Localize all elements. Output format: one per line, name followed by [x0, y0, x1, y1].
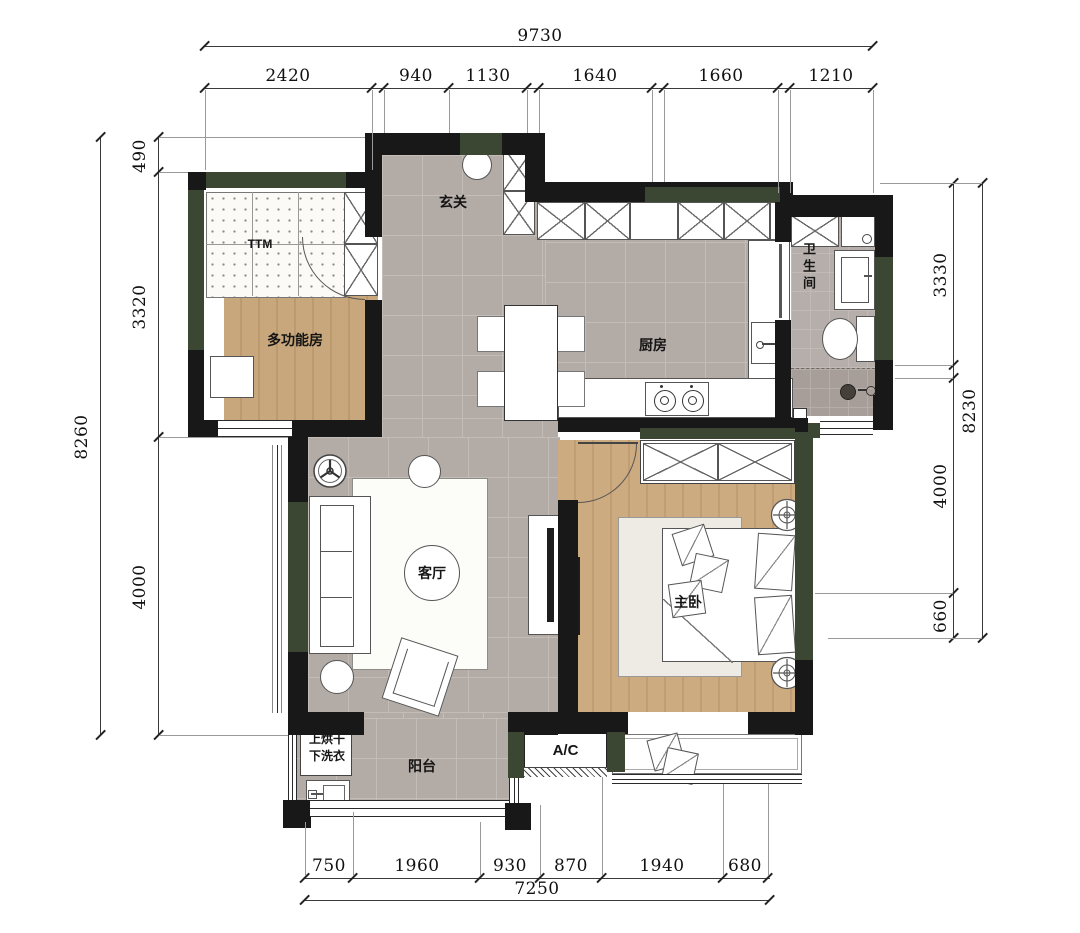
extension-line: [873, 90, 874, 193]
dimension-label: 490: [130, 121, 150, 191]
floor-plan: 客厅: [0, 0, 1080, 933]
wardrobe: [643, 443, 718, 481]
basin-icon: [841, 257, 869, 303]
extension-line: [353, 812, 354, 876]
dimension-line: [100, 137, 101, 735]
dining-table: [504, 305, 558, 421]
coffee-table: 客厅: [404, 545, 460, 601]
vanity: [834, 250, 875, 310]
wardrobe: [718, 443, 792, 481]
outer-wall: [795, 438, 813, 660]
side-stool: [408, 455, 441, 488]
kitchen-cabinet: [585, 202, 630, 240]
extension-line: [205, 90, 206, 170]
dimension-label: 1660: [686, 66, 756, 86]
wall: [775, 320, 791, 423]
dimension-label: 930: [475, 856, 545, 876]
extension-line: [652, 90, 653, 182]
extension-line: [372, 90, 373, 170]
ac-label: A/C: [553, 742, 579, 759]
wall: [502, 133, 545, 155]
wall: [188, 420, 218, 437]
extension-line: [895, 378, 953, 379]
extension-line: [160, 172, 188, 173]
floor-drain-icon: [840, 384, 856, 400]
room-label-balcony: 阳台: [392, 756, 452, 776]
dimension-line: [305, 900, 770, 901]
faucet-icon: [308, 790, 317, 799]
bay-window: [612, 774, 802, 784]
dimension-label: 4000: [130, 552, 150, 622]
extension-line: [160, 735, 288, 736]
bathroom-door-leaf: [779, 244, 782, 318]
toilet-icon: [822, 318, 858, 360]
kitchen-cabinet: [630, 202, 678, 240]
extension-line: [815, 593, 953, 594]
dimension-label: 1640: [560, 66, 630, 86]
window: [218, 420, 292, 437]
outer-wall: [288, 502, 308, 652]
wall: [365, 155, 382, 237]
kitchen-cabinet: [678, 202, 724, 240]
shower-head-icon: [858, 389, 867, 391]
extension-line: [790, 90, 791, 193]
extension-line: [828, 638, 982, 639]
extension-line: [449, 90, 450, 133]
wall: [790, 195, 875, 217]
wall: [748, 712, 813, 734]
dimension-label: 1940: [627, 856, 697, 876]
extension-line: [723, 784, 724, 876]
outer-wall: [508, 732, 524, 778]
extension-line: [664, 90, 665, 182]
outer-wall: [875, 257, 893, 360]
room-label-bathroom: 卫生间: [800, 242, 818, 293]
wall: [558, 712, 628, 734]
sofa: [309, 496, 371, 654]
toilet-tank: [856, 316, 875, 362]
room-label-tatami: TTM: [240, 237, 280, 251]
side-stool: [320, 660, 354, 694]
extension-line: [880, 183, 982, 184]
dimension-label: 3330: [931, 240, 951, 310]
window: [272, 445, 282, 713]
outer-wall: [206, 172, 346, 188]
dimension-label: 680: [710, 856, 780, 876]
ac-hatch: [524, 767, 607, 777]
extension-line: [895, 365, 953, 366]
extension-line: [778, 90, 779, 193]
extension-line: [305, 822, 306, 876]
extension-line: [480, 822, 481, 876]
window: [820, 421, 873, 435]
outer-wall: [188, 190, 204, 350]
room-label-kitchen: 厨房: [618, 335, 688, 355]
outer-wall: [645, 187, 780, 202]
dimension-label: 3320: [130, 272, 150, 342]
extension-line: [768, 784, 769, 876]
wall: [525, 155, 545, 202]
washing-machine-icon: [862, 234, 872, 244]
desk: [210, 356, 254, 398]
dimension-label: 8230: [960, 376, 980, 446]
bay-window-seat: [612, 734, 802, 774]
extension-line: [602, 777, 603, 876]
dimension-label: 7250: [502, 879, 572, 899]
wall: [292, 420, 382, 437]
laundry-label-line2: 下洗衣: [301, 747, 353, 764]
dimension-label: 660: [931, 581, 951, 651]
wall: [365, 300, 382, 420]
dimension-line: [982, 183, 983, 638]
extension-line: [540, 805, 541, 876]
extension-line: [527, 90, 528, 133]
extension-line: [160, 137, 365, 138]
wall: [775, 202, 791, 242]
wall: [283, 800, 311, 828]
wall: [288, 437, 308, 502]
extension-line: [539, 90, 540, 133]
wall: [365, 133, 460, 155]
wall: [288, 712, 364, 735]
pillow: [754, 533, 796, 592]
window: [288, 735, 297, 800]
dimension-label: 1130: [453, 66, 523, 86]
kitchen-cabinet: [724, 202, 770, 240]
dimension-label: 4000: [931, 451, 951, 521]
wall: [558, 500, 578, 714]
wall: [875, 195, 893, 257]
tv-console: [528, 515, 561, 635]
extension-line: [160, 437, 288, 438]
room-label-living: 客厅: [418, 563, 446, 583]
outer-wall: [607, 732, 625, 772]
dimension-line: [205, 46, 873, 47]
tv: [547, 528, 554, 622]
dimension-label: 940: [381, 66, 451, 86]
dimension-line: [953, 183, 954, 638]
outer-wall: [460, 133, 502, 155]
room-label-multipurpose: 多功能房: [250, 330, 340, 350]
wall: [873, 395, 893, 430]
wall: [505, 803, 531, 830]
pillow: [754, 595, 796, 656]
extension-line: [384, 90, 385, 133]
dimension-label: 1210: [796, 66, 866, 86]
dimension-label: 9730: [505, 26, 575, 46]
dimension-label: 2420: [253, 66, 323, 86]
fan-icon: [312, 453, 348, 489]
wall: [288, 652, 308, 714]
outer-wall: [640, 428, 795, 439]
ac-platform: A/C: [524, 732, 607, 768]
kitchen-cabinet: [537, 202, 585, 240]
dimension-label: 1960: [382, 856, 452, 876]
dimension-label: 8260: [72, 402, 92, 472]
stove-icon: [645, 382, 709, 416]
wall: [188, 172, 206, 190]
faucet-icon: [864, 275, 872, 277]
room-label-master-bedroom: 主卧: [658, 592, 718, 612]
wall: [188, 350, 204, 420]
dimension-label: 870: [536, 856, 606, 876]
room-label-entry: 玄关: [418, 192, 488, 212]
window: [509, 778, 519, 803]
window: [310, 800, 510, 817]
